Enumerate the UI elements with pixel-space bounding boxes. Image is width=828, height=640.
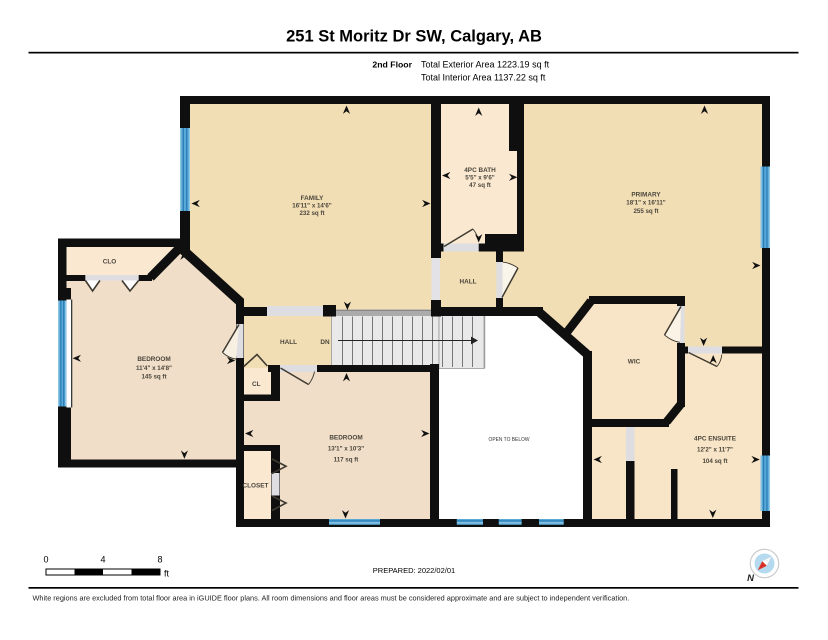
svg-text:0: 0 xyxy=(43,555,48,565)
svg-text:8: 8 xyxy=(157,555,162,565)
svg-text:BEDROOM: BEDROOM xyxy=(329,435,362,442)
svg-text:ft: ft xyxy=(164,569,170,579)
svg-text:16'11" x 14'6": 16'11" x 14'6" xyxy=(292,202,332,209)
svg-text:CLOSET: CLOSET xyxy=(243,483,269,490)
svg-text:104 sq ft: 104 sq ft xyxy=(702,458,727,465)
svg-text:255 sq ft: 255 sq ft xyxy=(633,208,658,215)
svg-text:12'2" x 11'7": 12'2" x 11'7" xyxy=(697,447,733,454)
svg-text:2nd Floor: 2nd Floor xyxy=(372,59,412,69)
svg-text:CL: CL xyxy=(252,381,261,388)
svg-text:13'1" x 10'3": 13'1" x 10'3" xyxy=(328,446,364,453)
svg-text:117 sq ft: 117 sq ft xyxy=(334,457,359,464)
svg-text:CLO: CLO xyxy=(103,259,117,266)
svg-text:47 sq ft: 47 sq ft xyxy=(469,182,491,189)
svg-text:11'4" x 14'8": 11'4" x 14'8" xyxy=(136,365,172,372)
svg-text:DN: DN xyxy=(320,339,330,346)
svg-text:WIC: WIC xyxy=(628,359,641,366)
svg-text:4: 4 xyxy=(100,555,105,565)
svg-text:4PC ENSUITE: 4PC ENSUITE xyxy=(694,436,737,443)
svg-text:Total Exterior Area 1223.19 sq: Total Exterior Area 1223.19 sq ft xyxy=(421,59,550,69)
svg-text:HALL: HALL xyxy=(459,279,476,286)
svg-text:Total Interior Area 1137.22 sq: Total Interior Area 1137.22 sq ft xyxy=(421,72,546,82)
svg-text:OPEN TO BELOW: OPEN TO BELOW xyxy=(489,437,530,443)
svg-text:232 sq ft: 232 sq ft xyxy=(299,210,324,217)
svg-text:18'1" x 16'11": 18'1" x 16'11" xyxy=(626,200,666,207)
svg-text:PREPARED: 2022/02/01: PREPARED: 2022/02/01 xyxy=(373,566,455,575)
svg-text:HALL: HALL xyxy=(280,339,297,346)
svg-text:FAMILY: FAMILY xyxy=(301,195,325,202)
svg-text:145 sq ft: 145 sq ft xyxy=(141,374,166,381)
svg-text:4PC BATH: 4PC BATH xyxy=(464,167,496,174)
svg-text:BEDROOM: BEDROOM xyxy=(137,356,170,363)
svg-text:PRIMARY: PRIMARY xyxy=(631,192,661,199)
svg-text:White regions are excluded fro: White regions are excluded from total fl… xyxy=(33,594,630,603)
svg-text:5'5" x 9'6": 5'5" x 9'6" xyxy=(465,175,495,182)
svg-text:251 St Moritz Dr SW, Calgary,: 251 St Moritz Dr SW, Calgary, AB xyxy=(286,28,542,46)
svg-text:N: N xyxy=(747,573,755,584)
